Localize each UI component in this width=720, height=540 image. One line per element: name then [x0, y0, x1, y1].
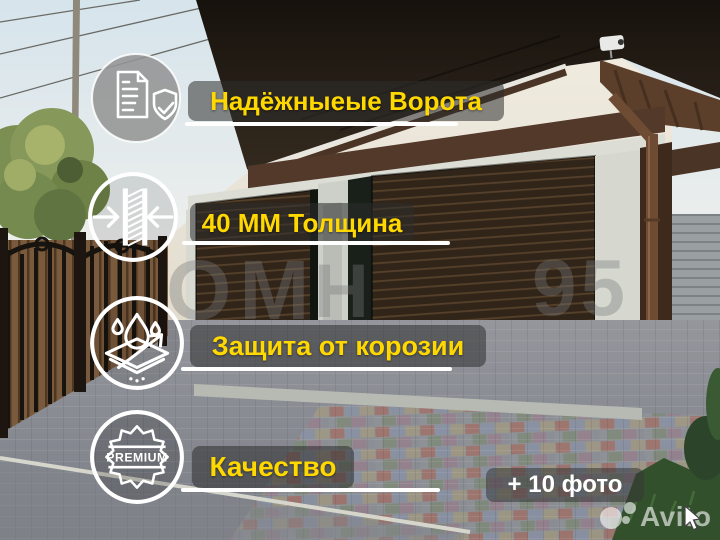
- document-shield-check-icon: [90, 52, 182, 144]
- avito-logo-dot: [622, 516, 630, 524]
- premium-badge-icon: PREMIUM: [88, 408, 186, 506]
- feature-label-corrosion: Защита от корозии: [190, 325, 486, 367]
- mouse-cursor: [684, 505, 706, 533]
- listing-photo: ОМ Н 95 Надёжныеые Ворота: [0, 0, 720, 540]
- feature-label-quality: Качество: [192, 446, 354, 488]
- panel-thickness-arrows-icon: [86, 170, 180, 264]
- avito-logo-dot: [600, 507, 622, 529]
- underline: [182, 241, 450, 245]
- underline: [185, 122, 458, 126]
- feature-label-reliable-gates: Надёжныеые Ворота: [188, 81, 504, 121]
- feature-label-thickness: 40 ММ Толщина: [190, 203, 414, 243]
- premium-badge-text: PREMIUM: [106, 451, 167, 465]
- underline: [181, 367, 452, 371]
- corrosion-protection-drops-icon: [88, 294, 186, 392]
- photo-count-badge[interactable]: + 10 фото: [486, 468, 644, 502]
- avito-logo-dot: [624, 502, 636, 514]
- underline: [181, 488, 440, 492]
